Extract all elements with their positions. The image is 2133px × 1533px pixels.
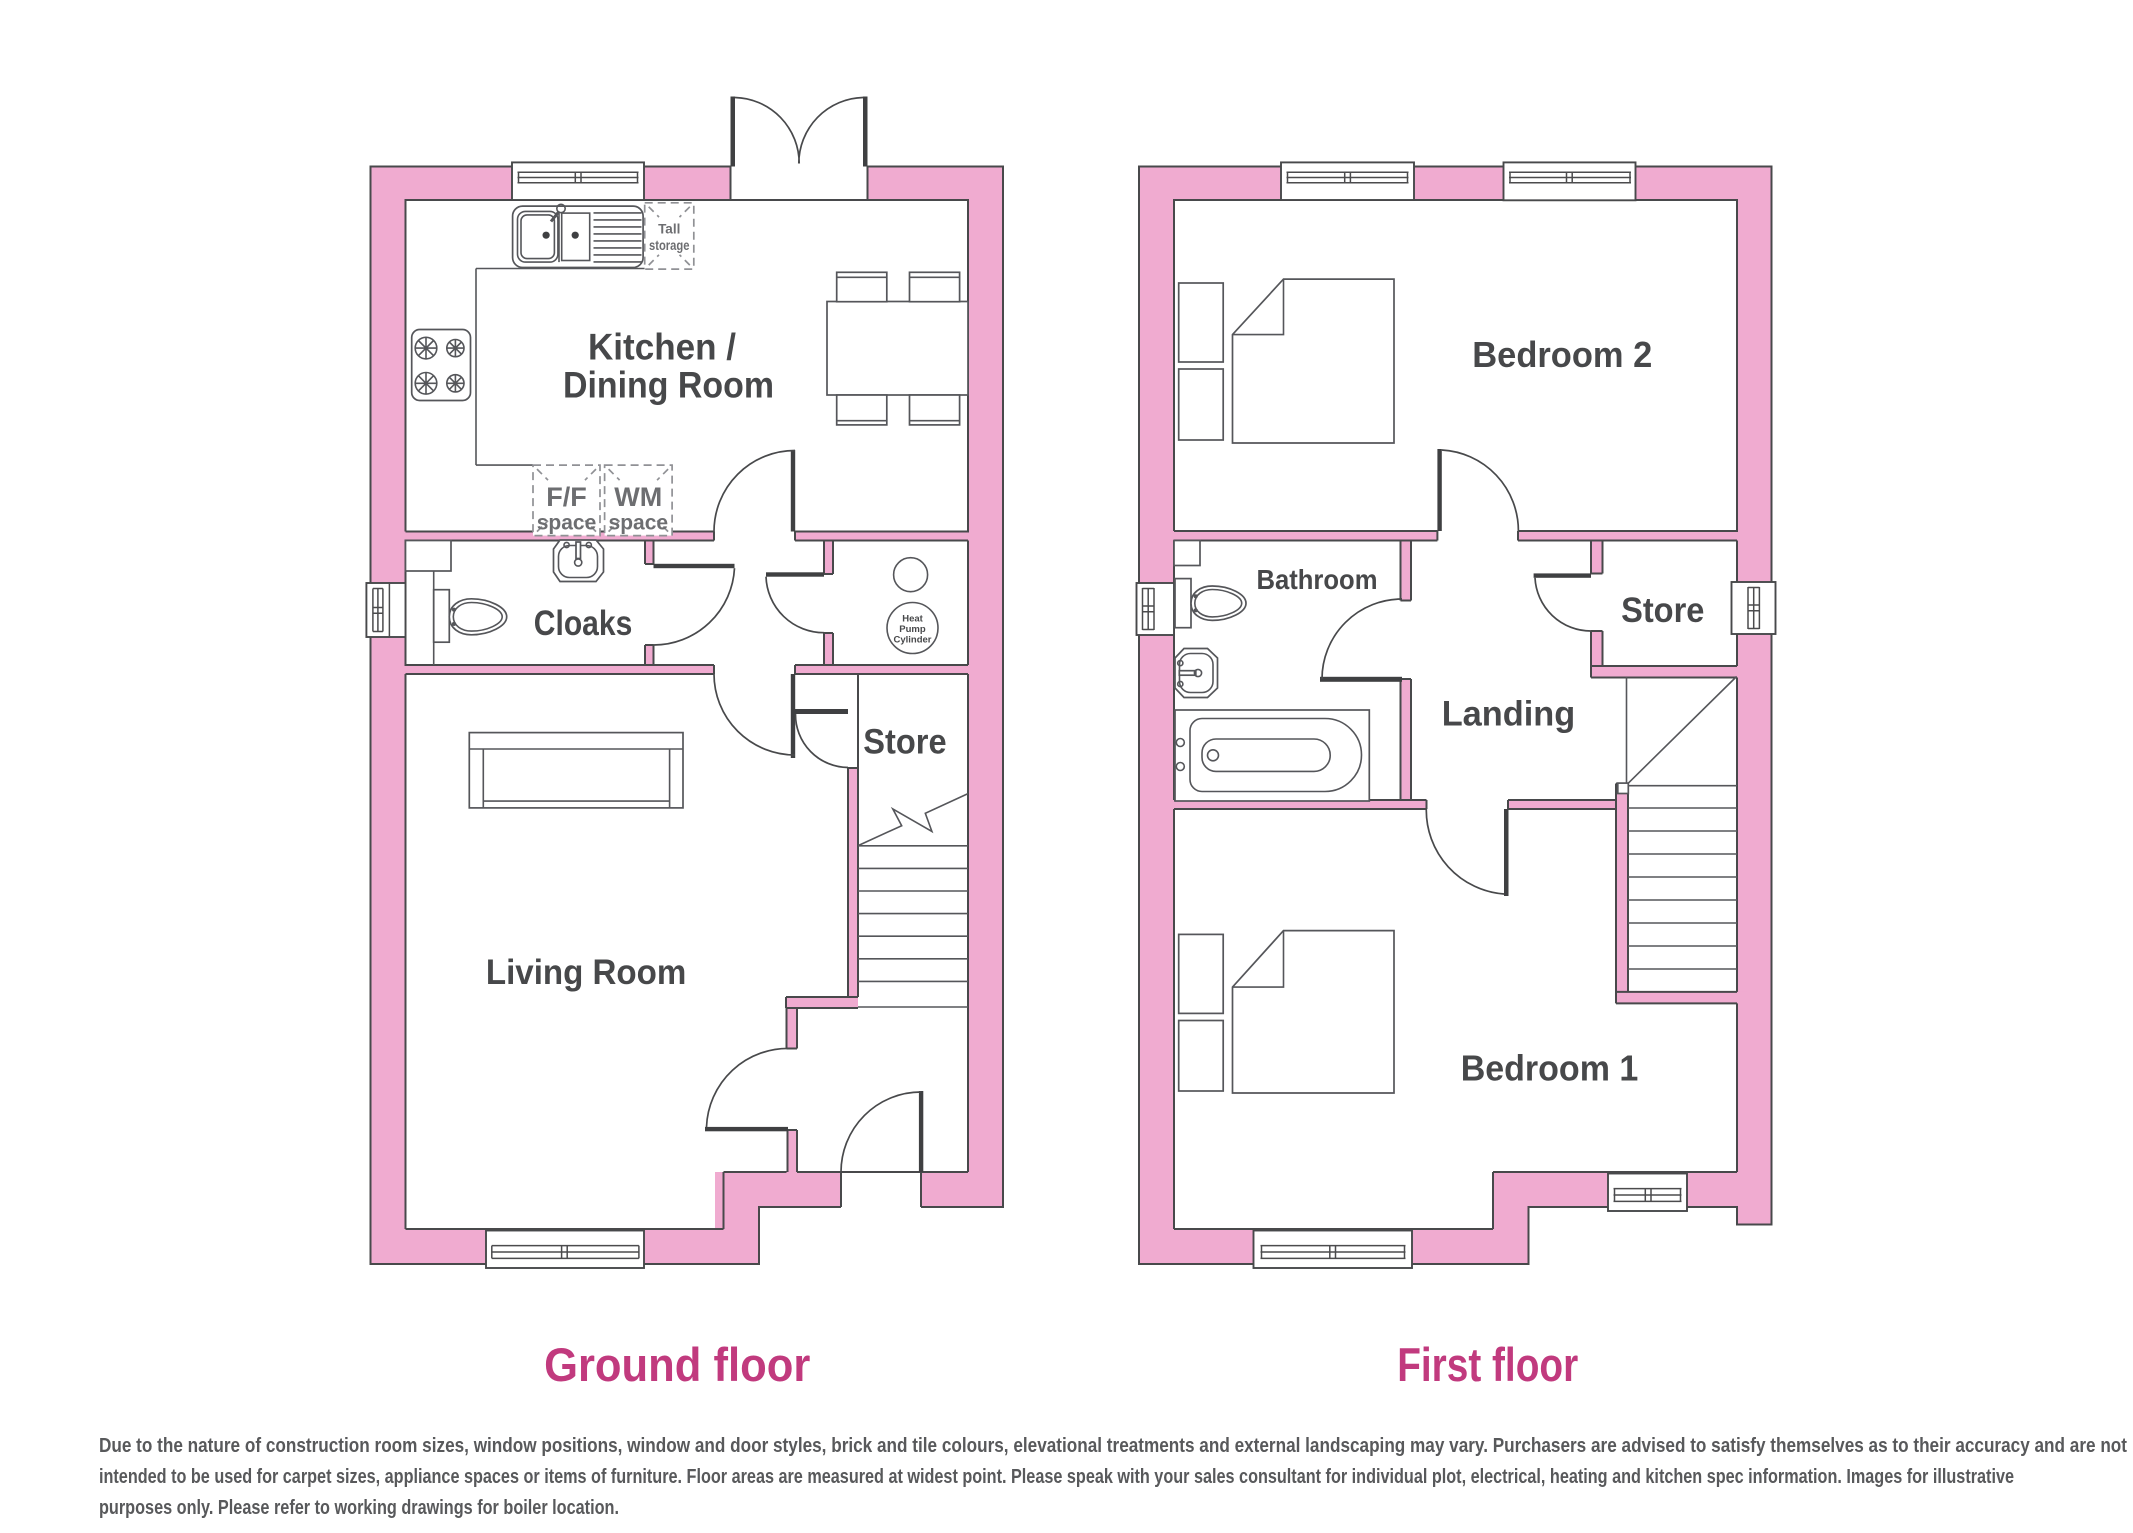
svg-text:Cylinder: Cylinder <box>893 635 931 646</box>
svg-text:space: space <box>537 512 597 535</box>
svg-text:Heat: Heat <box>902 614 923 625</box>
svg-text:Landing: Landing <box>1442 695 1576 734</box>
svg-text:storage: storage <box>649 238 690 253</box>
svg-text:Living Room: Living Room <box>486 953 686 992</box>
svg-text:space: space <box>609 512 669 535</box>
svg-text:purposes only. Please refer to: purposes only. Please refer to working d… <box>99 1497 619 1519</box>
svg-text:Bathroom: Bathroom <box>1257 564 1378 595</box>
svg-text:Store: Store <box>863 722 946 761</box>
svg-text:Ground floor: Ground floor <box>544 1338 810 1391</box>
svg-text:F/F: F/F <box>546 482 587 512</box>
svg-text:Bedroom 1: Bedroom 1 <box>1461 1047 1639 1088</box>
svg-text:Due to the nature of construct: Due to the nature of construction room s… <box>99 1435 2127 1457</box>
svg-text:Pump: Pump <box>899 624 926 635</box>
svg-text:Bedroom 2: Bedroom 2 <box>1472 334 1652 375</box>
svg-text:Store: Store <box>1621 591 1704 630</box>
svg-text:intended to be used for carpet: intended to be used for carpet sizes, ap… <box>99 1466 2014 1488</box>
svg-text:Tall: Tall <box>658 222 680 237</box>
svg-text:First floor: First floor <box>1397 1338 1578 1391</box>
svg-text:WM: WM <box>614 482 662 512</box>
svg-text:Cloaks: Cloaks <box>534 604 633 643</box>
